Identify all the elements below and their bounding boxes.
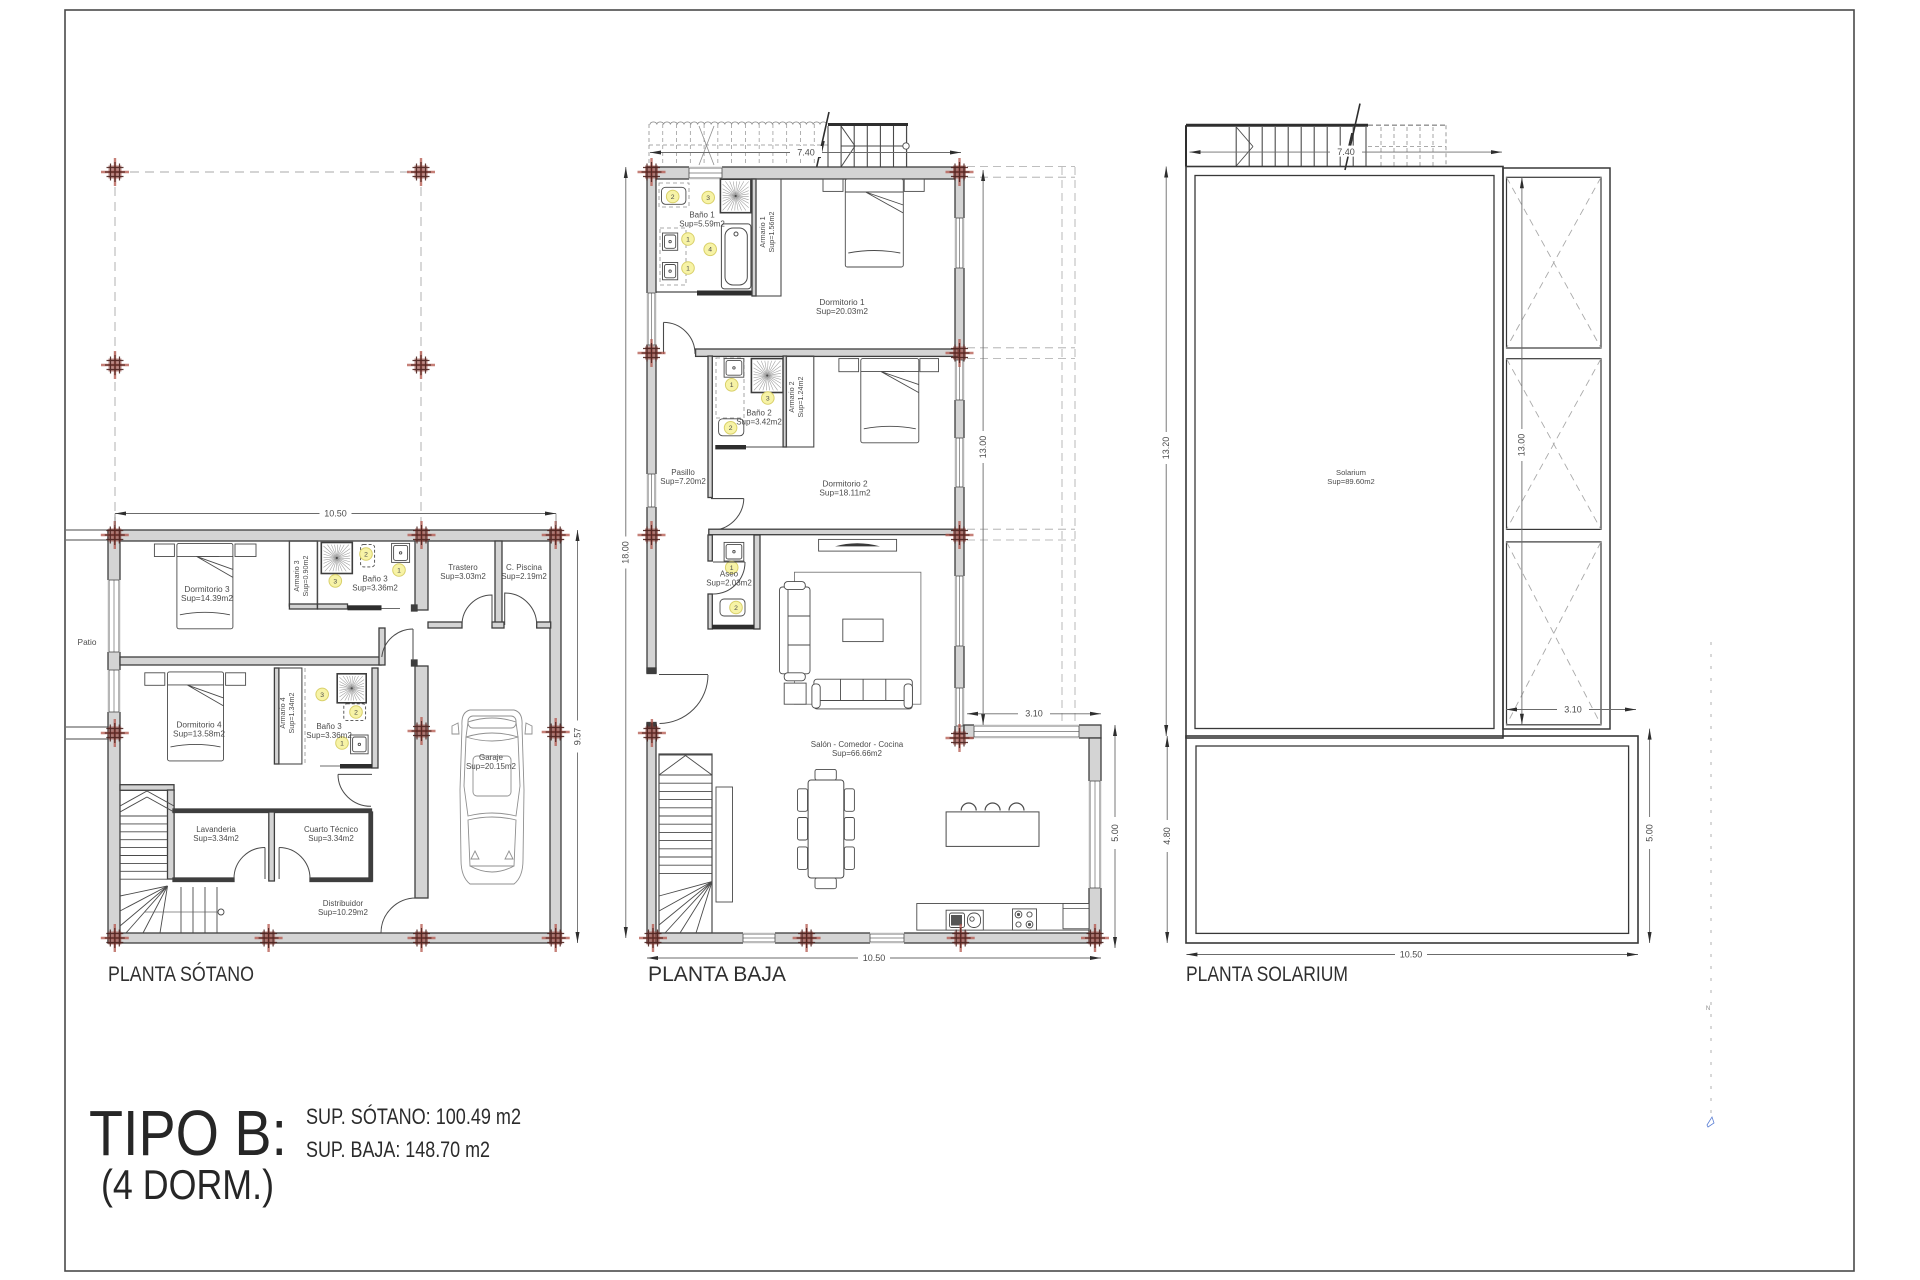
svg-text:2: 2 xyxy=(354,709,358,716)
svg-text:13.20: 13.20 xyxy=(1161,437,1171,460)
svg-text:10.50: 10.50 xyxy=(863,953,886,963)
svg-text:Sup=0.90m2: Sup=0.90m2 xyxy=(301,556,310,597)
svg-text:Sup=2.03m2: Sup=2.03m2 xyxy=(706,579,752,588)
svg-text:2: 2 xyxy=(671,194,675,201)
svg-text:Baño 3: Baño 3 xyxy=(316,722,342,731)
svg-text:Sup=14.39m2: Sup=14.39m2 xyxy=(181,593,233,603)
svg-text:7.40: 7.40 xyxy=(1337,147,1355,157)
svg-text:Salón - Comedor - Cocina: Salón - Comedor - Cocina xyxy=(811,740,904,749)
svg-text:PLANTA SÓTANO: PLANTA SÓTANO xyxy=(108,963,254,986)
svg-text:Sup=3.36m2: Sup=3.36m2 xyxy=(306,731,352,740)
svg-text:Sup=1.56m2: Sup=1.56m2 xyxy=(767,212,776,253)
svg-text:10.50: 10.50 xyxy=(1400,949,1423,959)
svg-text:3: 3 xyxy=(766,395,770,402)
svg-text:4: 4 xyxy=(708,247,712,254)
svg-text:Sup=3.34m2: Sup=3.34m2 xyxy=(193,834,239,843)
svg-text:SUP. SÓTANO: 100.49 m2: SUP. SÓTANO: 100.49 m2 xyxy=(306,1104,521,1129)
svg-text:Sup=20.15m2: Sup=20.15m2 xyxy=(466,762,517,771)
svg-text:3: 3 xyxy=(333,578,337,585)
svg-text:1: 1 xyxy=(686,236,690,243)
svg-text:Armario 2: Armario 2 xyxy=(787,381,796,412)
svg-text:1: 1 xyxy=(730,382,734,389)
svg-text:N: N xyxy=(1706,1006,1710,1012)
svg-text:13.00: 13.00 xyxy=(978,436,988,459)
svg-text:Sup=3.03m2: Sup=3.03m2 xyxy=(440,572,486,581)
svg-text:Sup=20.03m2: Sup=20.03m2 xyxy=(816,306,868,316)
svg-text:2: 2 xyxy=(729,425,733,432)
svg-text:3.10: 3.10 xyxy=(1025,709,1043,719)
svg-text:PLANTA SOLARIUM: PLANTA SOLARIUM xyxy=(1186,963,1348,986)
svg-text:13.00: 13.00 xyxy=(1517,434,1527,457)
svg-text:Armario 4: Armario 4 xyxy=(278,697,287,728)
svg-text:Sup=3.34m2: Sup=3.34m2 xyxy=(308,834,354,843)
svg-text:Sup=18.11m2: Sup=18.11m2 xyxy=(819,488,871,498)
svg-text:Armario 1: Armario 1 xyxy=(758,216,767,247)
svg-text:Garaje: Garaje xyxy=(479,753,504,762)
svg-text:PLANTA BAJA: PLANTA BAJA xyxy=(648,963,786,986)
svg-text:Sup=1.24m2: Sup=1.24m2 xyxy=(796,377,805,418)
svg-text:Solarium: Solarium xyxy=(1336,468,1366,477)
svg-text:Baño 2: Baño 2 xyxy=(746,409,772,418)
svg-text:Sup=1.34m2: Sup=1.34m2 xyxy=(287,693,296,734)
svg-text:Trastero: Trastero xyxy=(448,563,478,572)
svg-text:Sup=66.66m2: Sup=66.66m2 xyxy=(832,749,883,758)
svg-text:TIPO B:: TIPO B: xyxy=(89,1097,287,1169)
svg-text:5.00: 5.00 xyxy=(1644,824,1654,842)
svg-text:3: 3 xyxy=(706,195,710,202)
svg-text:Sup=3.36m2: Sup=3.36m2 xyxy=(352,584,398,593)
svg-text:Cuarto Técnico: Cuarto Técnico xyxy=(304,825,359,834)
svg-text:Sup=2.19m2: Sup=2.19m2 xyxy=(501,572,547,581)
svg-text:Sup=7.20m2: Sup=7.20m2 xyxy=(660,477,706,486)
svg-text:Baño 1: Baño 1 xyxy=(689,211,715,220)
svg-text:Pasillo: Pasillo xyxy=(671,468,695,477)
svg-text:Sup=10.29m2: Sup=10.29m2 xyxy=(318,908,369,917)
svg-text:9.57: 9.57 xyxy=(572,728,582,746)
svg-text:1: 1 xyxy=(397,567,401,574)
svg-text:10.50: 10.50 xyxy=(324,508,347,518)
svg-text:18.00: 18.00 xyxy=(621,541,631,564)
svg-text:Lavanderia: Lavanderia xyxy=(196,825,236,834)
svg-text:7.40: 7.40 xyxy=(797,147,815,157)
svg-text:1: 1 xyxy=(340,740,344,747)
svg-text:2: 2 xyxy=(734,605,738,612)
svg-text:Distribuidor: Distribuidor xyxy=(323,899,364,908)
svg-text:3.10: 3.10 xyxy=(1564,704,1582,714)
svg-text:Armario 3: Armario 3 xyxy=(292,560,301,591)
svg-text:5.00: 5.00 xyxy=(1110,824,1120,842)
svg-text:C. Piscina: C. Piscina xyxy=(506,563,543,572)
svg-text:(4 DORM.): (4 DORM.) xyxy=(101,1161,274,1208)
svg-text:4.80: 4.80 xyxy=(1162,827,1172,845)
svg-text:2: 2 xyxy=(364,551,368,558)
svg-text:3: 3 xyxy=(320,692,324,699)
svg-text:SUP. BAJA: 148.70 m2: SUP. BAJA: 148.70 m2 xyxy=(306,1137,490,1162)
svg-text:Sup=5.59m2: Sup=5.59m2 xyxy=(679,220,725,229)
svg-text:Sup=89.60m2: Sup=89.60m2 xyxy=(1327,477,1375,486)
svg-text:1: 1 xyxy=(686,265,690,272)
svg-text:Aseo: Aseo xyxy=(720,570,739,579)
svg-text:Patio: Patio xyxy=(78,637,97,647)
svg-text:Sup=13.58m2: Sup=13.58m2 xyxy=(173,729,225,739)
svg-text:Baño 3: Baño 3 xyxy=(362,575,388,584)
svg-text:Sup=3.42m2: Sup=3.42m2 xyxy=(736,418,782,427)
